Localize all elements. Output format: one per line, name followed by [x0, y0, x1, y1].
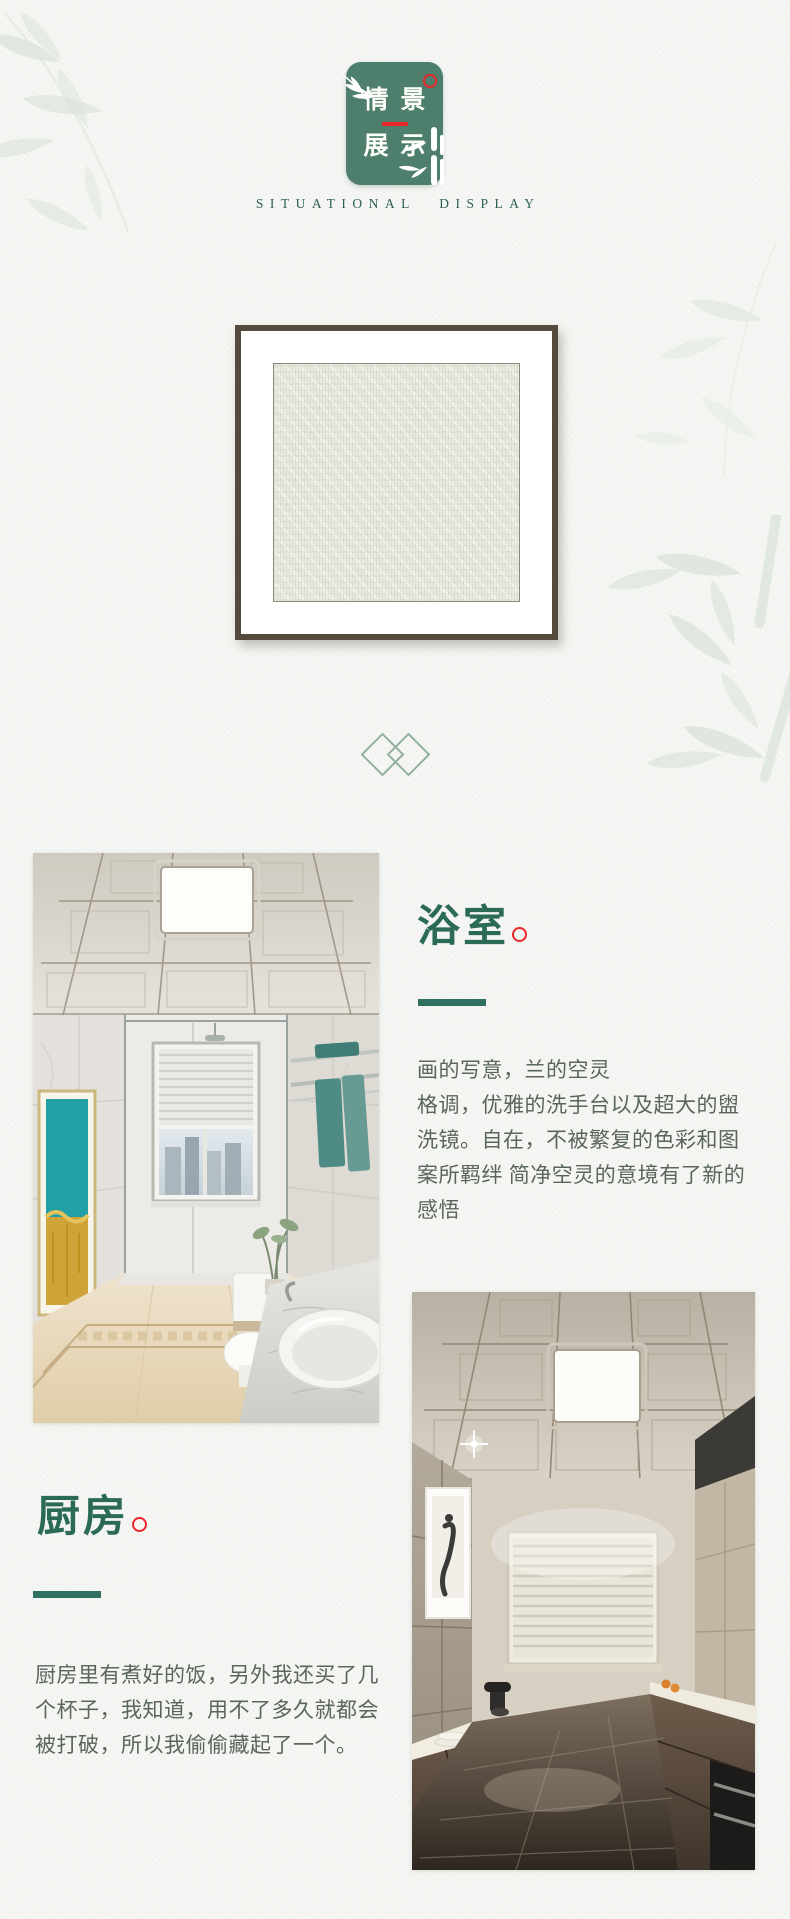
bathroom-title: 浴室 [417, 906, 527, 949]
wall-art [39, 1091, 95, 1315]
ceiling-light-panel [548, 1344, 646, 1428]
bathroom-photo [33, 853, 379, 1423]
kitchen-description: 厨房里有煮好的饭，另外我还买了几个杯子，我知道，用不了多久就都会被打破，所以我偷… [35, 1658, 391, 1763]
product-frame [235, 325, 558, 640]
coffered-ceiling [33, 853, 379, 1015]
badge-bamboo-bottomright-icon [397, 125, 447, 187]
badge-red-dot-icon [423, 74, 437, 88]
section-badge: 情景 展示 [346, 62, 443, 185]
kitchen-title-text: 厨房 [37, 1494, 129, 1541]
bathroom-description: 画的写意，兰的空灵 格调，优雅的洗手台以及超大的盥洗镜。自在，不被繁复的色彩和图… [417, 1053, 757, 1228]
red-circle-icon [512, 927, 527, 942]
ceiling-light-panel [155, 861, 259, 939]
kitchen-photo [412, 1292, 755, 1870]
kitchen-paragraph-1: 厨房里有煮好的饭，另外我还买了几个杯子，我知道，用不了多久就都会被打破，所以我偷… [35, 1658, 391, 1763]
bathroom-title-text: 浴室 [417, 904, 509, 951]
bathroom-paragraph-1: 画的写意，兰的空灵 [417, 1053, 757, 1088]
shower-window [151, 1043, 261, 1207]
badge-bamboo-topleft-icon [338, 70, 382, 106]
kitchen-title-underline [33, 1591, 101, 1598]
bathroom-title-underline [418, 999, 486, 1006]
kitchen-window [491, 1508, 675, 1672]
bathroom-paragraph-2: 格调，优雅的洗手台以及超大的盥洗镜。自在，不被繁复的色彩和图案所羁绊 简净空灵的… [417, 1088, 757, 1228]
red-circle-icon [132, 1517, 147, 1532]
page-background: 情景 展示 SITUATIONAL DISPLAY [0, 0, 790, 1919]
wallpaper-swatch [273, 363, 520, 602]
bamboo-decoration-right-middle [535, 515, 790, 805]
section-subtitle: SITUATIONAL DISPLAY [0, 196, 790, 212]
kitchen-art [426, 1488, 470, 1618]
oven [710, 1760, 755, 1870]
bamboo-decoration-top-left [0, 0, 228, 292]
bamboo-decoration-right-upper [596, 236, 790, 486]
kitchen-title: 厨房 [37, 1496, 147, 1539]
diamond-icon [387, 733, 431, 777]
